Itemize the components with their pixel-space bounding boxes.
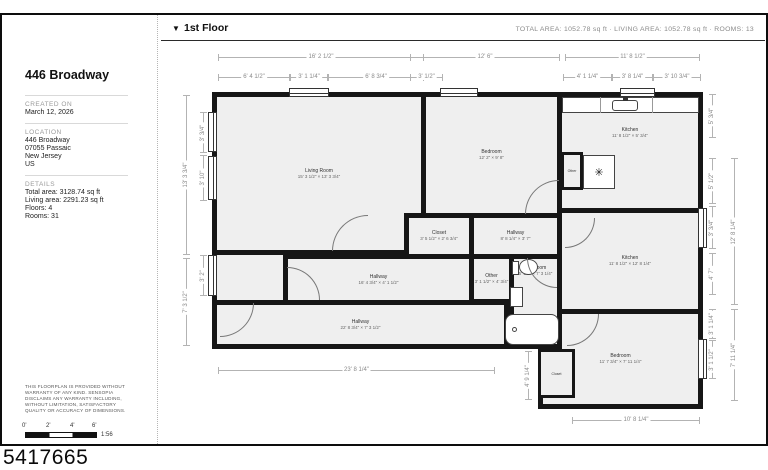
room-vestibule [212,250,288,305]
location-line: 07055 Passaic [25,145,71,153]
scale-tick: 4' [70,423,74,429]
dim-left-inner: 3' 3/4" [203,112,204,153]
scale-tick: 6' [92,423,96,429]
scale-bar-segments [25,432,97,438]
window-icon [440,88,478,97]
dim-right-inner: 4' 7" [712,253,713,295]
created-on-value: March 12, 2026 [25,109,74,117]
room-living: Living Room 15' 3 1/2" × 13' 3 3/4" [212,92,426,255]
page-number: 5417665 [3,446,88,470]
dim-right-inner: 3' 3/4" [712,206,713,249]
dim-right-outer: 12' 8 1/4" [734,158,735,305]
window-icon [698,208,707,248]
room-hallway-mid: Hallway 8' 8 1/4" × 3' 7" [469,213,562,259]
room-name: Kitchen [542,255,718,261]
dim-bottom-step: 4' 9 1/4" [528,351,529,400]
details-line: Floors: 4 [25,205,52,213]
dim-top-outer: 16' 2 1/2" [218,57,424,58]
toilet-tank-icon [512,261,519,275]
faucet-icon [623,97,628,101]
room-name: Kitchen [542,127,718,133]
chevron-down-icon[interactable]: ▼ [172,24,180,33]
dim-top-outer: 12' 6" [410,57,560,58]
floor-label[interactable]: 1st Floor [184,22,228,34]
details-label: DETAILS [25,181,55,188]
room-closet-mid: Closet 3' 5 1/2" × 2' 6 3/4" [404,213,474,259]
room-name: Hallway [454,230,577,236]
room-name: Living Room [197,168,441,174]
divider [25,123,128,124]
dim-top-inner: 3' 1 1/4" [290,77,328,78]
room-other-top: Other [561,152,583,190]
dim-top-outer: 11' 8 1/2" [565,57,700,58]
counter-divider [652,97,653,113]
room-dims: 15' 3 1/2" × 13' 3 3/4" [197,174,441,180]
details-line: Living area: 2291.23 sq ft [25,197,104,205]
counter-divider [600,97,601,113]
room-dims: 11' 8 1/2" × 5' 3/4" [542,133,718,139]
room-hallway-lower: Hallway 22' 8 3/4" × 7' 3 1/2" [212,300,509,349]
dim-right-inner: 3' 1 1/4" [712,309,713,339]
dim-top-inner: 3' 1/2" [410,77,443,78]
dim-left-inner: 3' 10" [203,155,204,201]
window-icon [698,339,707,379]
details-line: Rooms: 31 [25,213,59,221]
location-line: US [25,161,35,169]
sink-icon [612,100,638,111]
location-line: New Jersey [25,153,62,161]
dim-right-inner: 3' 1 1/2" [712,340,713,379]
appliance-box: ✳ [583,155,615,189]
dim-top-inner: 3' 10 3/4" [653,77,701,78]
dim-top-inner: 3' 8 1/4" [612,77,653,78]
fan-icon: ✳ [594,166,603,179]
room-closet-bottom: Closet [538,349,575,398]
sidebar-divider [157,15,158,444]
window-icon [289,88,329,97]
room-dims: 12' 2" × 9' 8" [406,155,577,161]
dim-top-inner: 4' 1 1/4" [563,77,612,78]
dim-bottom: 23' 8 1/4" [218,370,495,371]
window-icon [208,255,217,296]
location-line: 446 Broadway [25,137,70,145]
dim-left-outer: 13' 3 3/4" [186,95,187,255]
divider [25,95,128,96]
window-icon [208,156,217,200]
location-label: LOCATION [25,129,62,136]
drain-icon [512,327,517,332]
property-title: 446 Broadway [25,68,109,82]
disclaimer-text: THIS FLOORPLAN IS PROVIDED WITHOUT WARRA… [25,384,137,414]
window-icon [208,112,217,152]
dim-right-outer: 7' 11 1/4" [734,309,735,401]
dim-top-inner: 6' 4 1/2" [218,77,290,78]
created-on-label: CREATED ON [25,101,72,108]
divider [25,175,128,176]
room-dims: 8' 8 1/4" × 3' 7" [454,236,577,242]
window-icon [620,88,655,97]
room-other-mid: Other 3' 1 1/2" × 4' 3/4" [469,254,514,304]
room-name: Bedroom [406,149,577,155]
dim-bottom-right: 10' 8 1/4" [572,420,700,421]
bathroom-sink-icon [510,287,523,307]
room-dims: 22' 8 3/4" × 7' 3 1/2" [197,325,524,331]
scale-tick: 0' [22,423,26,429]
scale-ratio: 1:56 [101,432,113,438]
dim-left-outer: 7' 3 1/2" [186,258,187,346]
area-summary: TOTAL AREA: 1052.78 sq ft · LIVING AREA:… [516,26,754,33]
details-line: Total area: 3128.74 sq ft [25,189,100,197]
scale-tick: 2' [46,423,50,429]
dim-right-inner: 5' 3/4" [712,94,713,138]
dim-right-inner: 5' 1/2" [712,158,713,204]
header-underline [161,40,765,41]
dim-left-inner: 3' 2" [203,255,204,296]
room-dims: 11' 8 1/2" × 12' 8 1/4" [542,261,718,267]
